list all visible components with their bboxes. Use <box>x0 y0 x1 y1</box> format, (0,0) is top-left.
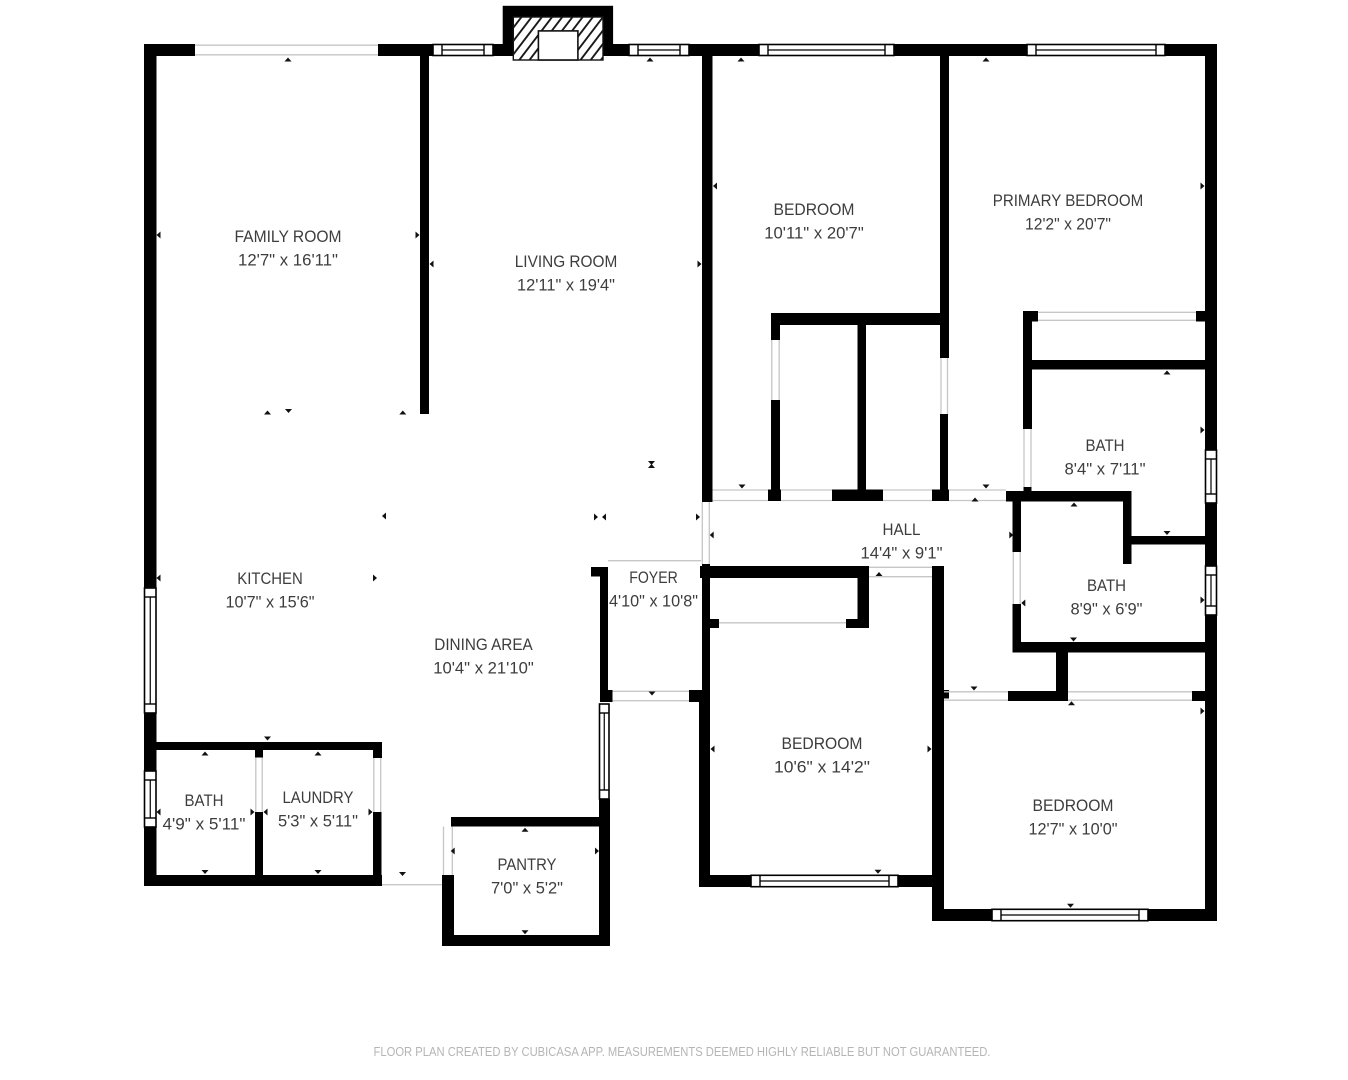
svg-text:12'11" x 19'4": 12'11" x 19'4" <box>517 275 615 294</box>
svg-text:4'10" x 10'8": 4'10" x 10'8" <box>609 591 698 610</box>
svg-text:10'7" x 15'6": 10'7" x 15'6" <box>226 592 315 611</box>
svg-text:BATH: BATH <box>1086 436 1125 455</box>
svg-text:10'6" x 14'2": 10'6" x 14'2" <box>774 757 870 776</box>
svg-text:BEDROOM: BEDROOM <box>1033 796 1114 815</box>
svg-text:FAMILY ROOM: FAMILY ROOM <box>235 227 342 246</box>
svg-text:10'4" x 21'10": 10'4" x 21'10" <box>433 658 534 677</box>
svg-text:12'2" x 20'7": 12'2" x 20'7" <box>1025 214 1111 233</box>
svg-text:FLOOR PLAN CREATED BY CUBICASA: FLOOR PLAN CREATED BY CUBICASA APP. MEAS… <box>374 1044 991 1059</box>
svg-text:PRIMARY BEDROOM: PRIMARY BEDROOM <box>993 191 1144 210</box>
svg-text:DINING AREA: DINING AREA <box>434 635 533 654</box>
svg-text:12'7" x 10'0": 12'7" x 10'0" <box>1029 819 1118 838</box>
svg-text:8'9" x 6'9": 8'9" x 6'9" <box>1071 599 1143 618</box>
svg-text:8'4" x 7'11": 8'4" x 7'11" <box>1065 459 1146 478</box>
svg-text:10'11" x 20'7": 10'11" x 20'7" <box>764 223 864 242</box>
svg-text:BATH: BATH <box>1087 576 1126 595</box>
svg-text:LIVING ROOM: LIVING ROOM <box>515 252 618 271</box>
svg-text:HALL: HALL <box>883 520 921 539</box>
svg-text:BATH: BATH <box>185 791 224 810</box>
svg-text:14'4" x 9'1": 14'4" x 9'1" <box>861 543 943 562</box>
svg-text:5'3" x 5'11": 5'3" x 5'11" <box>278 811 358 830</box>
svg-text:12'7" x 16'11": 12'7" x 16'11" <box>238 250 338 269</box>
svg-text:KITCHEN: KITCHEN <box>237 569 303 588</box>
svg-text:BEDROOM: BEDROOM <box>774 200 855 219</box>
svg-text:LAUNDRY: LAUNDRY <box>283 788 354 807</box>
svg-text:4'9" x 5'11": 4'9" x 5'11" <box>163 814 246 833</box>
svg-text:BEDROOM: BEDROOM <box>782 734 863 753</box>
svg-text:PANTRY: PANTRY <box>498 855 557 874</box>
svg-text:FOYER: FOYER <box>629 568 678 587</box>
svg-text:7'0" x 5'2": 7'0" x 5'2" <box>491 878 563 897</box>
